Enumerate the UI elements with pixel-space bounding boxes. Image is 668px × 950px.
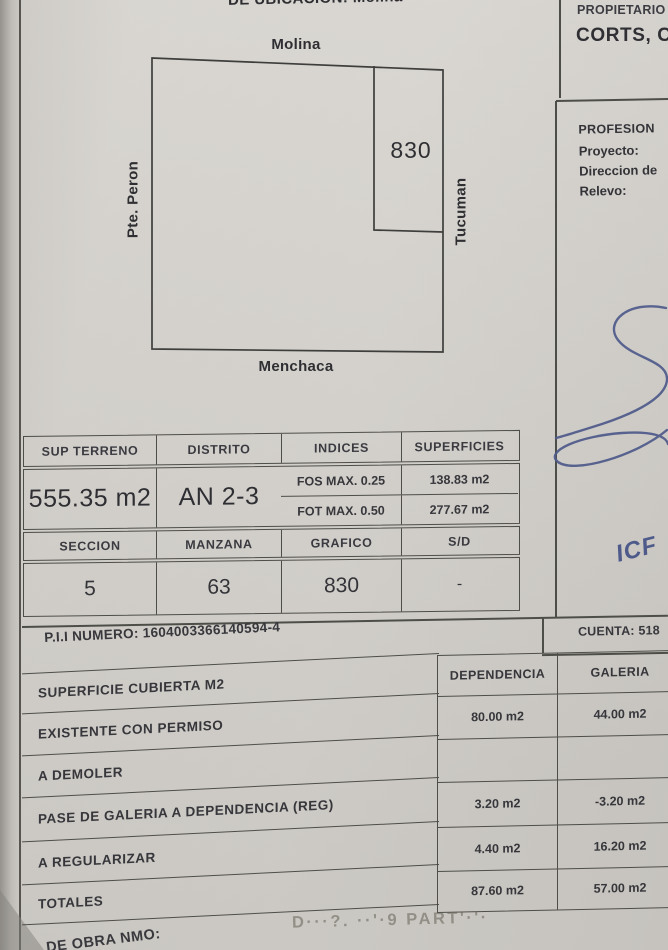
cuenta-label: CUENTA: 518	[578, 623, 660, 638]
parcel-number: 830	[383, 137, 439, 164]
values-totales: 87.60 m2 57.00 m2	[438, 867, 668, 912]
values-regularizar: 4.40 m2 16.20 m2	[438, 823, 668, 872]
terrain-header-row: SUP TERRENO DISTRITO INDICES SUPERFICIES	[23, 430, 520, 467]
scanned-cadastral-form: DE UBICACION: Molina PROPIETARIO CORTS, …	[0, 0, 668, 950]
label-regularizar: A REGULARIZAR	[38, 849, 156, 870]
right-panel-hline	[556, 98, 668, 102]
dep-existente: 80.00 m2	[438, 694, 558, 739]
surface-table-values: DEPENDENCIA GALERIA 80.00 m2 44.00 m2 3.…	[437, 650, 668, 913]
col-dependencia: DEPENDENCIA	[438, 653, 558, 696]
gal-existente: 44.00 m2	[558, 692, 668, 737]
sd-value: -	[401, 558, 517, 611]
gal-demoler	[558, 735, 668, 780]
header-sup-terreno: SUP TERRENO	[24, 435, 156, 466]
values-existente: 80.00 m2 44.00 m2	[438, 692, 668, 740]
header-grafico: GRAFICO	[281, 528, 401, 556]
seccion-header-row: SECCION MANZANA GRAFICO S/D	[23, 526, 520, 561]
fot-value: 277.67 m2	[401, 494, 517, 524]
gal-totales: 57.00 m2	[558, 867, 668, 910]
header-manzana: MANZANA	[156, 530, 281, 559]
label-totales: TOTALES	[38, 893, 103, 911]
values-demoler	[438, 735, 668, 783]
distrito-value: AN 2-3	[156, 467, 281, 528]
street-tucuman: Tucuman	[453, 178, 470, 246]
street-pte-peron: Pte. Peron	[125, 159, 142, 241]
dep-totales: 87.60 m2	[438, 869, 558, 912]
scan-edge-strip	[0, 0, 19, 950]
field-relevo: Relevo:	[579, 182, 657, 198]
surface-table-labels: SUPERFICIE CUBIERTA M2 EXISTENTE CON PER…	[22, 653, 439, 925]
dep-regularizar: 4.40 m2	[438, 825, 558, 871]
label-pase: PASE DE GALERIA A DEPENDENCIA (REG)	[38, 797, 334, 826]
field-direccion: Direccion de	[579, 162, 657, 178]
values-pase: 3.20 m2 -3.20 m2	[438, 778, 668, 828]
dep-demoler	[438, 737, 558, 782]
header-sd: S/D	[401, 527, 517, 555]
street-menchaca: Menchaca	[243, 358, 349, 375]
scan-edge-line	[19, 0, 21, 950]
propietario-name: CORTS, C	[576, 25, 668, 47]
profesion-heading: PROFESION	[578, 121, 656, 136]
profesionales-block: PROFESION Proyecto: Direccion de Relevo:	[578, 121, 657, 203]
header-indices: INDICES	[281, 432, 401, 462]
terrain-value-row: 555.35 m2 AN 2-3 FOS MAX. 0.25 138.83 m2…	[23, 463, 520, 530]
fot-label: FOT MAX. 0.50	[281, 495, 401, 525]
manzana-value: 63	[156, 561, 281, 615]
right-panel-divider	[555, 101, 557, 617]
location-title: DE UBICACION: Molina	[228, 0, 403, 9]
obra-label: DE OBRA NMO:	[45, 926, 161, 950]
field-proyecto: Proyecto:	[579, 142, 657, 158]
propietario-label: PROPIETARIO	[577, 3, 666, 17]
surface-title: SUPERFICIE CUBIERTA M2	[38, 676, 225, 700]
label-existente: EXISTENTE CON PERMISO	[38, 718, 223, 742]
fos-label: FOS MAX. 0.25	[281, 465, 401, 495]
fot-row: FOT MAX. 0.50 277.67 m2	[281, 494, 518, 526]
gal-pase: -3.20 m2	[558, 778, 668, 825]
street-molina: Molina	[250, 36, 342, 53]
label-demoler: A DEMOLER	[38, 764, 123, 783]
cuenta-box-left-line	[542, 618, 544, 653]
terrain-table: SUP TERRENO DISTRITO INDICES SUPERFICIES…	[23, 430, 520, 619]
right-panel-divider-top	[559, 0, 561, 98]
indices-cells: FOS MAX. 0.25 138.83 m2 FOT MAX. 0.50 27…	[281, 464, 518, 526]
seccion-value: 5	[24, 562, 156, 616]
header-seccion: SECCION	[24, 531, 156, 560]
seccion-value-row: 5 63 830 -	[23, 557, 520, 617]
gal-regularizar: 16.20 m2	[558, 823, 668, 869]
surface-grid-header: DEPENDENCIA GALERIA	[438, 651, 668, 697]
fos-row: FOS MAX. 0.25 138.83 m2	[281, 464, 518, 497]
fos-value: 138.83 m2	[401, 464, 517, 494]
handwritten-initials: ICF	[613, 531, 660, 568]
header-distrito: DISTRITO	[156, 434, 281, 465]
sup-terreno-value: 555.35 m2	[24, 468, 156, 529]
faded-stamp-text: D···?. ··'·9 PART'·'·	[292, 908, 489, 932]
header-superficies: SUPERFICIES	[401, 431, 517, 461]
dep-pase: 3.20 m2	[438, 780, 558, 827]
grafico-value: 830	[281, 559, 401, 612]
col-galeria: GALERIA	[558, 651, 668, 694]
